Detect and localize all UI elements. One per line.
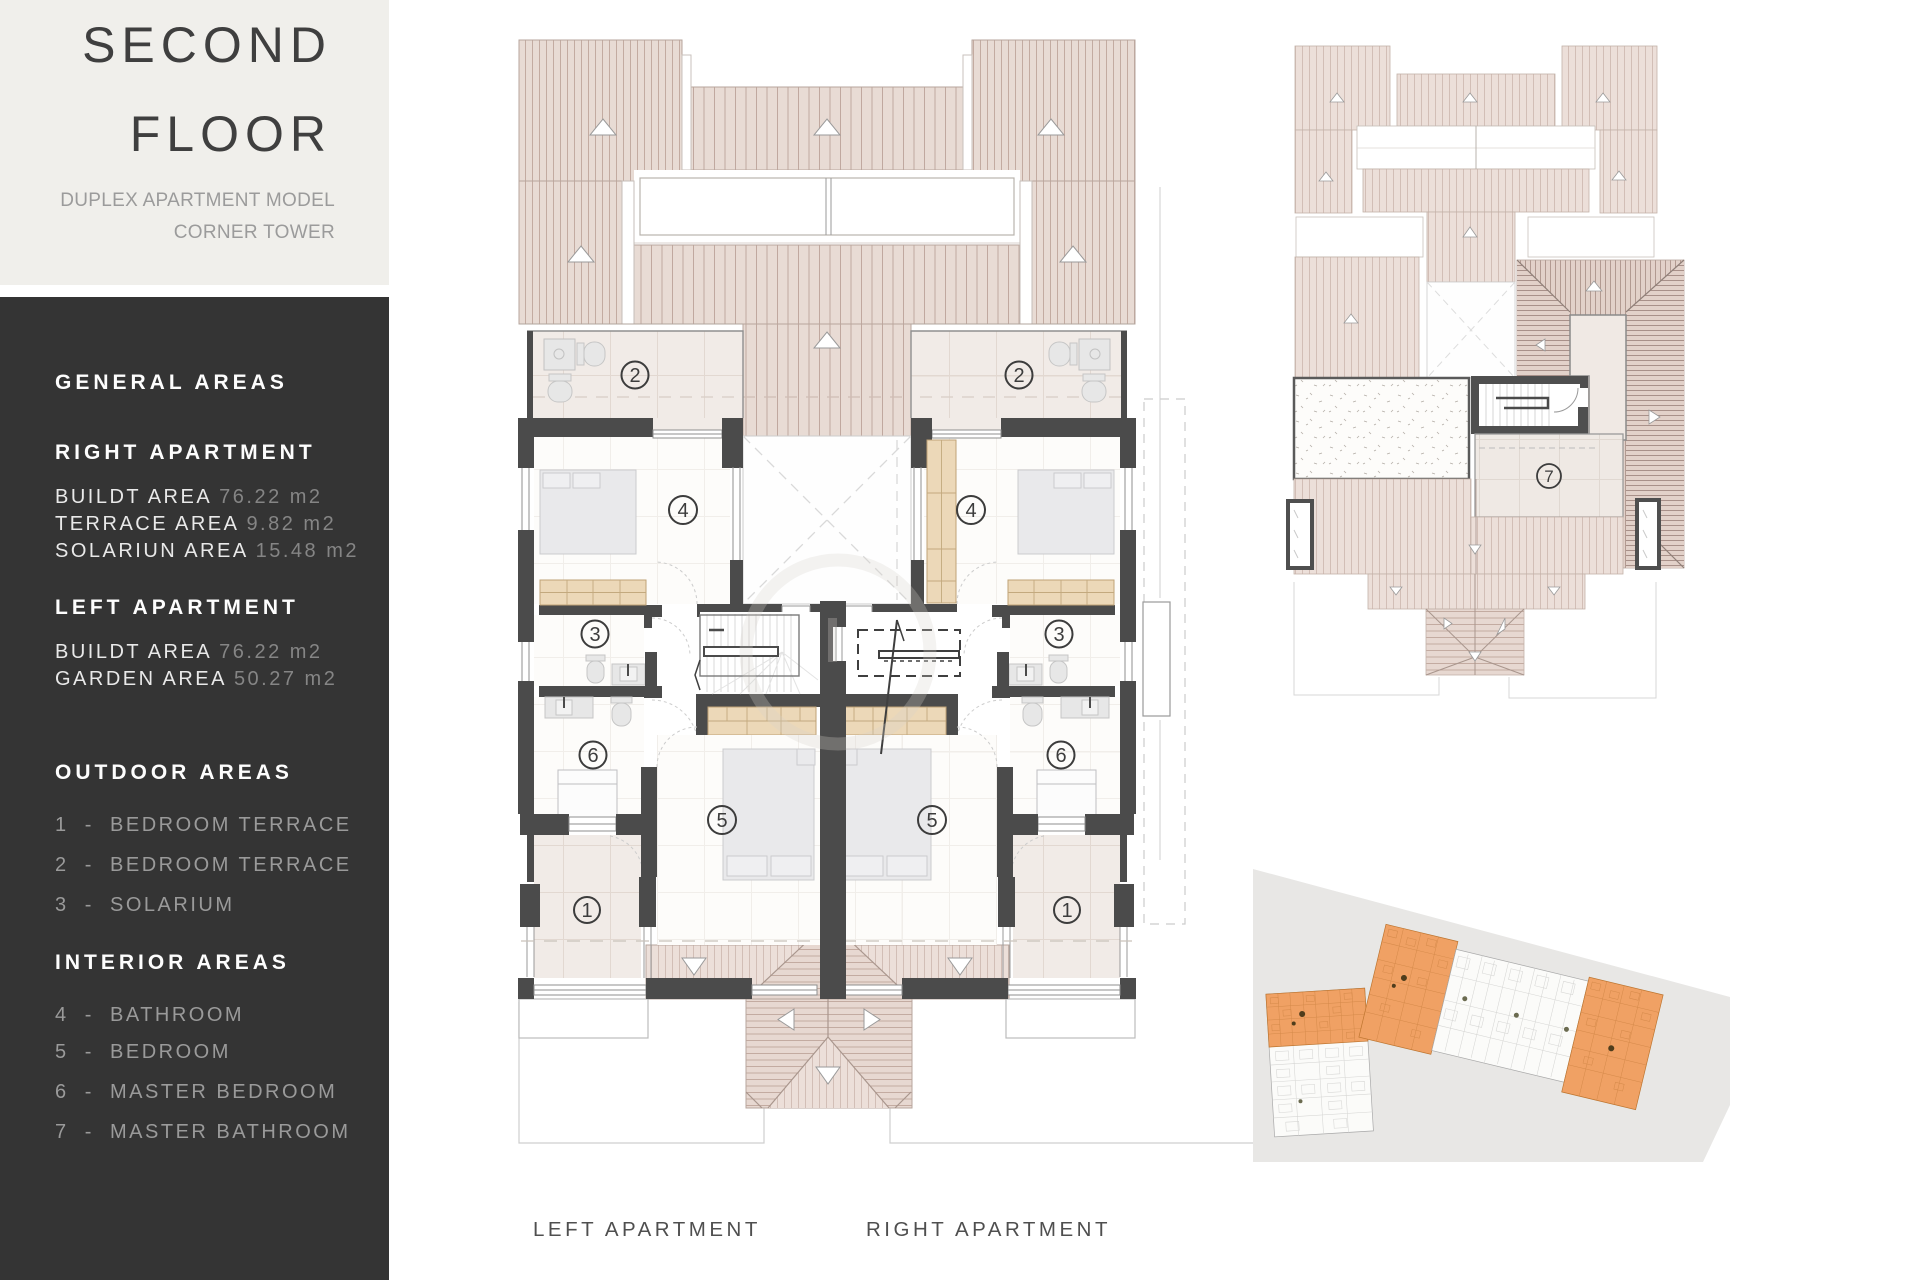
- svg-text:2: 2: [1013, 365, 1024, 387]
- svg-text:4: 4: [965, 500, 976, 522]
- svg-text:3: 3: [589, 624, 600, 646]
- svg-text:6: 6: [1055, 745, 1066, 767]
- svg-text:2: 2: [629, 365, 640, 387]
- svg-text:3: 3: [1053, 624, 1064, 646]
- svg-text:5: 5: [926, 810, 937, 832]
- svg-text:5: 5: [716, 810, 727, 832]
- svg-text:4: 4: [677, 500, 688, 522]
- svg-text:6: 6: [587, 745, 598, 767]
- svg-text:7: 7: [1544, 467, 1553, 486]
- svg-text:1: 1: [1061, 900, 1072, 922]
- svg-text:1: 1: [581, 900, 592, 922]
